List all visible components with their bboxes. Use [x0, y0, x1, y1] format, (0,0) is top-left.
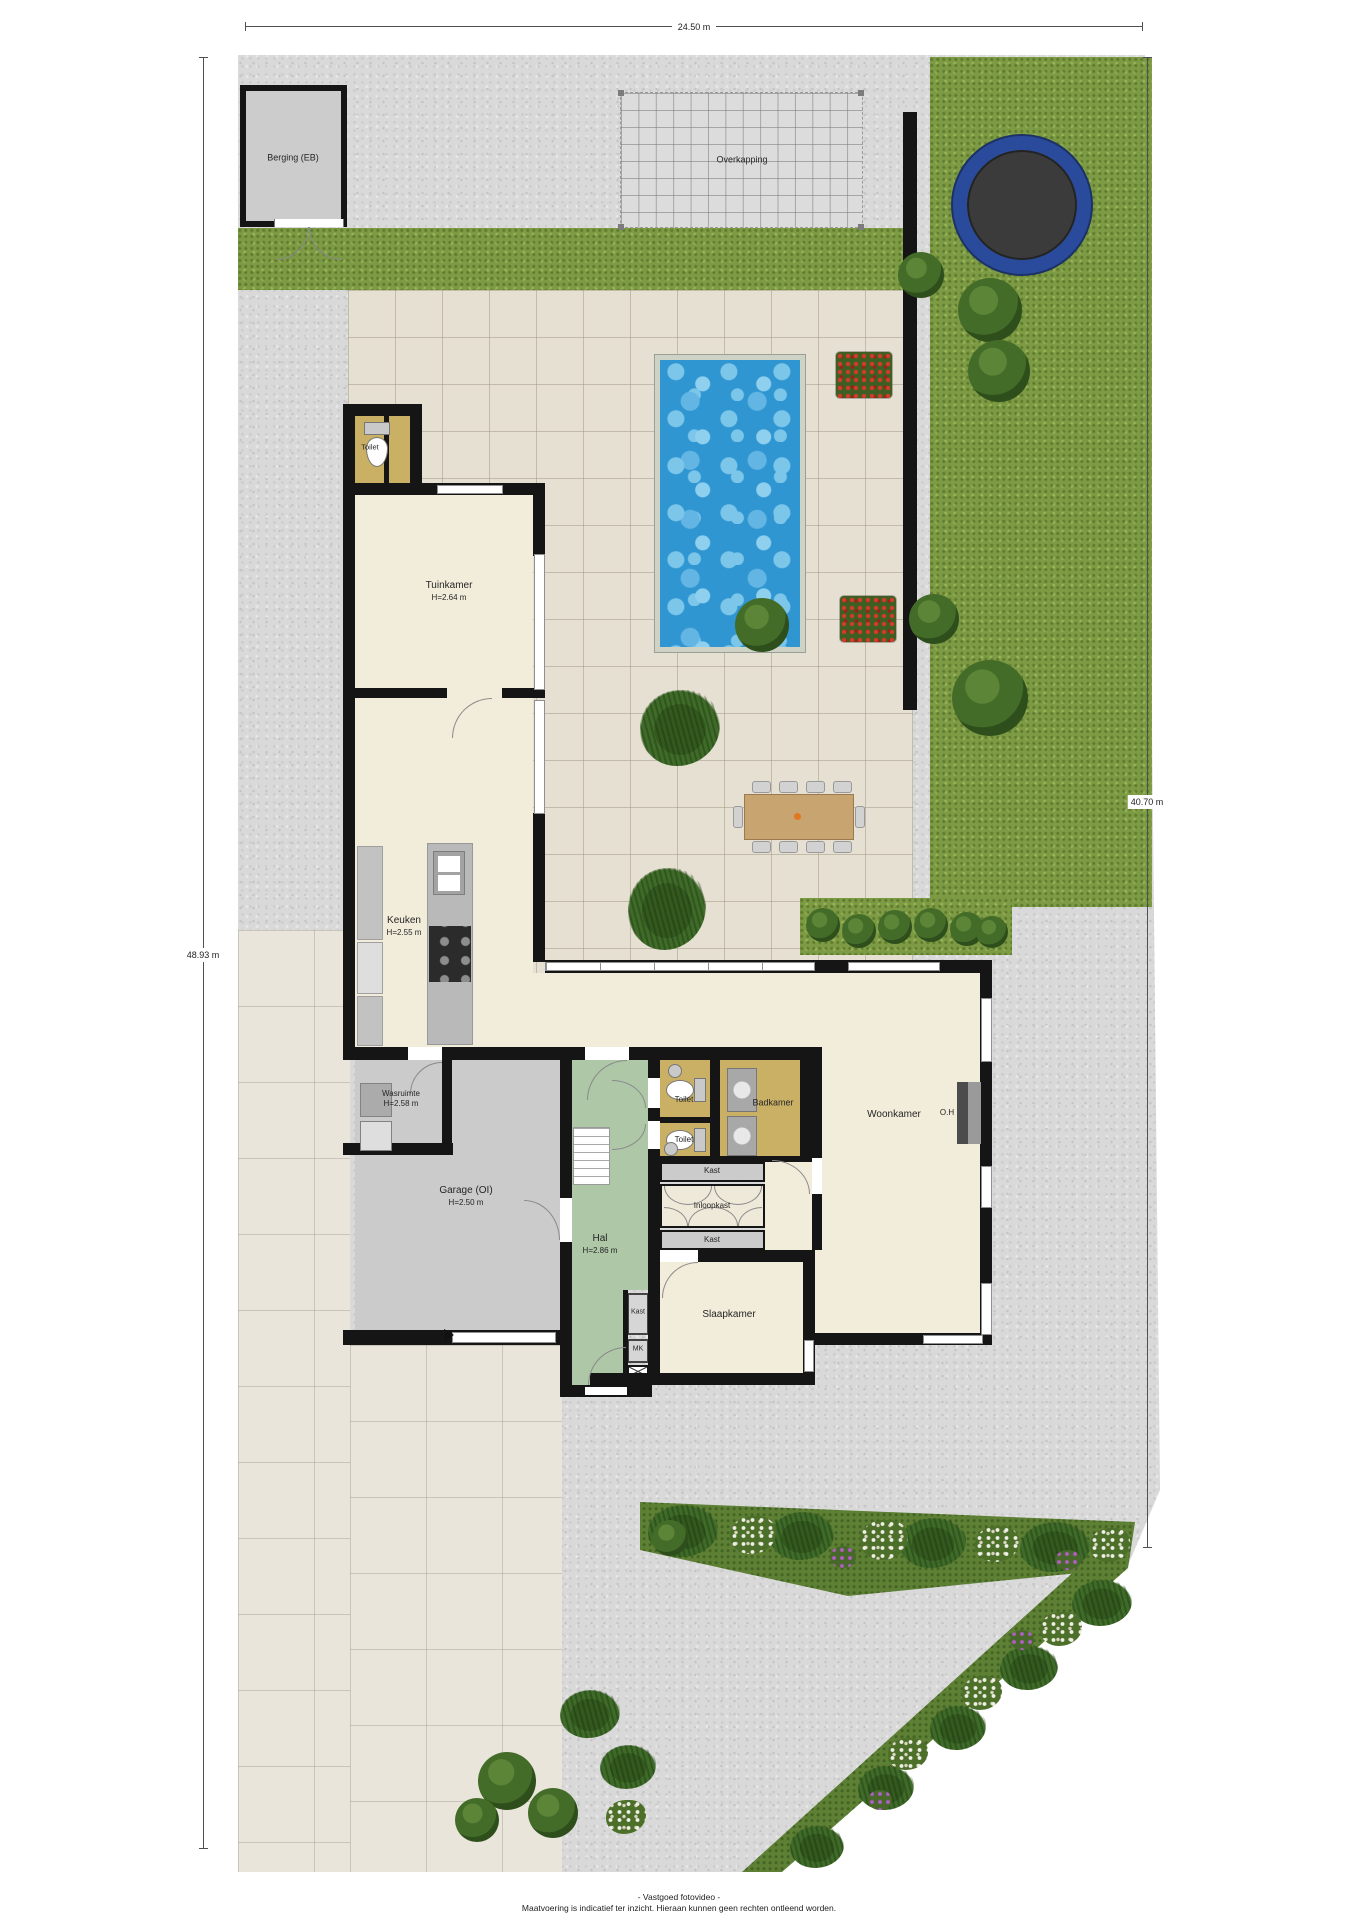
hedge-bush	[976, 916, 1008, 948]
ornamental-grass	[930, 1706, 986, 1750]
garden-chair	[806, 781, 825, 793]
flower-cluster	[962, 1676, 1002, 1710]
fireplace	[957, 1082, 968, 1144]
wall	[410, 404, 422, 495]
room-label-badkamer: Badkamer	[752, 1097, 793, 1108]
wall	[710, 1060, 720, 1158]
hedge-bush	[914, 908, 948, 942]
staircase	[573, 1127, 610, 1185]
bush	[958, 278, 1022, 342]
room-label-kast-bottom: Kast	[704, 1235, 720, 1245]
room-label-toilet-garden: Toilet	[361, 442, 379, 451]
room-label-wasruimte: WasruimteH=2.58 m	[382, 1089, 420, 1109]
kitchen-counter	[357, 996, 383, 1046]
room-label-toilet-1: Toilet	[675, 1095, 694, 1105]
toilet-cistern	[694, 1078, 706, 1102]
garden-chair	[779, 841, 798, 853]
flower-planter	[836, 352, 892, 398]
garden-chair	[752, 781, 771, 793]
garden-chair	[833, 781, 852, 793]
room-label-garage: Garage (OI)H=2.50 m	[439, 1185, 492, 1208]
door-opening	[812, 1158, 822, 1194]
garden-chair	[733, 806, 743, 828]
dimension-label-top: 24.50 m	[672, 22, 717, 32]
garden-chair	[855, 806, 865, 828]
wall	[343, 404, 355, 495]
front-door-opening	[585, 1387, 627, 1395]
living-room-area	[812, 973, 980, 1333]
dryer	[360, 1121, 392, 1151]
wall	[629, 1047, 812, 1060]
window	[981, 1166, 992, 1208]
bathroom-sink	[727, 1116, 757, 1156]
dimension-line-segment	[716, 26, 1143, 27]
wall	[343, 495, 355, 1060]
dining-area	[533, 973, 822, 1047]
window	[923, 1335, 983, 1344]
dimension-tick	[245, 22, 246, 31]
wall	[800, 1060, 812, 1158]
pergola-post	[858, 90, 864, 96]
flower-planter	[840, 596, 896, 642]
flower-cluster	[830, 1546, 856, 1568]
hand-basin	[668, 1064, 682, 1078]
wall	[533, 483, 545, 556]
flower-cluster	[1055, 1550, 1081, 1570]
dimension-tick	[199, 57, 208, 58]
ornamental-grass	[1000, 1646, 1058, 1690]
kitchen-sink	[433, 851, 465, 895]
flower-cluster	[888, 1738, 928, 1770]
entrance-arrow-icon	[444, 1329, 454, 1341]
window	[981, 998, 992, 1062]
door-opening	[648, 1078, 660, 1108]
dimension-label-left: 48.93 m	[184, 948, 223, 962]
room-label-kast-hal: Kast	[631, 1309, 645, 1318]
driveway-tiles	[238, 930, 350, 1872]
bush	[455, 1798, 499, 1842]
toilet-closet	[389, 416, 410, 483]
dimension-line-top: 24.50 m	[245, 21, 1143, 32]
flower-cluster	[1040, 1612, 1082, 1646]
ornamental-grass	[1072, 1580, 1132, 1626]
garage-door-opening	[452, 1332, 556, 1343]
pergola-post	[858, 224, 864, 230]
fireplace	[968, 1082, 981, 1144]
wall	[812, 1047, 822, 1250]
hedge-bush	[842, 914, 876, 948]
garden-chair	[806, 841, 825, 853]
hedge-bush	[806, 908, 840, 942]
door-opening	[585, 1047, 629, 1060]
wall	[442, 1060, 452, 1145]
bush	[898, 252, 944, 298]
dimension-tick	[199, 1848, 208, 1849]
footer-credit: - Vastgoed fotovideo -	[0, 1892, 1358, 1902]
toilet-cistern	[364, 422, 390, 435]
door-opening	[660, 1250, 698, 1262]
dimension-line-segment	[245, 26, 672, 27]
room-label-keuken: KeukenH=2.55 m	[387, 915, 422, 938]
window	[848, 962, 940, 971]
hedge-bush	[878, 910, 912, 944]
wall	[343, 1047, 587, 1060]
wall	[533, 813, 545, 962]
bush	[968, 340, 1030, 402]
door-opening	[560, 1198, 572, 1242]
flower-cluster	[1010, 1630, 1034, 1650]
room-label-tuinkamer: TuinkamerH=2.64 m	[426, 580, 473, 603]
flower-cluster	[868, 1790, 892, 1810]
wall	[355, 688, 447, 698]
room-label-inloopkast: Inloopkast	[694, 1201, 730, 1211]
window	[981, 1283, 992, 1335]
garden-chair	[779, 781, 798, 793]
door-opening	[408, 1047, 442, 1060]
pergola-post	[618, 90, 624, 96]
footer-disclaimer: Maatvoering is indicatief ter inzicht. H…	[0, 1903, 1358, 1913]
window	[534, 554, 545, 690]
window	[534, 700, 545, 814]
trampoline	[953, 136, 1091, 274]
garden-chair	[752, 841, 771, 853]
garden-chair	[833, 841, 852, 853]
cooktop	[429, 926, 471, 982]
bush	[528, 1788, 578, 1838]
door-opening	[648, 1121, 660, 1149]
ornamental-grass	[790, 1826, 844, 1868]
bush	[909, 594, 959, 644]
room-label-meterkast: MK	[633, 1346, 644, 1355]
room-label-woonkamer: Woonkamer	[867, 1109, 921, 1122]
bush	[952, 660, 1028, 736]
wall	[648, 1156, 812, 1162]
bush	[652, 1520, 688, 1556]
dimension-tick	[1143, 57, 1152, 58]
pergola-post	[618, 224, 624, 230]
dimension-tick	[1142, 22, 1143, 31]
room-label-hal: HalH=2.86 m	[583, 1233, 618, 1256]
dimension-tick	[1143, 1547, 1152, 1548]
kitchen-counter	[357, 846, 383, 940]
kitchen-counter	[357, 942, 383, 994]
shed-door-opening	[274, 219, 344, 227]
sliding-door-window	[545, 962, 815, 971]
table-decoration	[794, 813, 801, 820]
window	[804, 1340, 814, 1372]
room-label-berging: Berging (EB)	[267, 152, 319, 163]
toilet-cistern	[694, 1128, 706, 1152]
room-label-kast-top: Kast	[704, 1166, 720, 1176]
window	[437, 485, 503, 494]
dimension-label-right: 40.70 m	[1128, 795, 1167, 809]
room-label-fireplace: O.H	[940, 1108, 954, 1118]
room-label-slaapkamer: Slaapkamer	[702, 1309, 755, 1322]
room-label-toilet-2: Toilet	[675, 1135, 694, 1145]
wall	[648, 1285, 660, 1385]
bush	[735, 598, 789, 652]
room-label-overkapping: Overkapping	[716, 154, 767, 165]
floor-plan: Berging (EB) Overkapping Toilet Tuinkame…	[0, 0, 1358, 1920]
